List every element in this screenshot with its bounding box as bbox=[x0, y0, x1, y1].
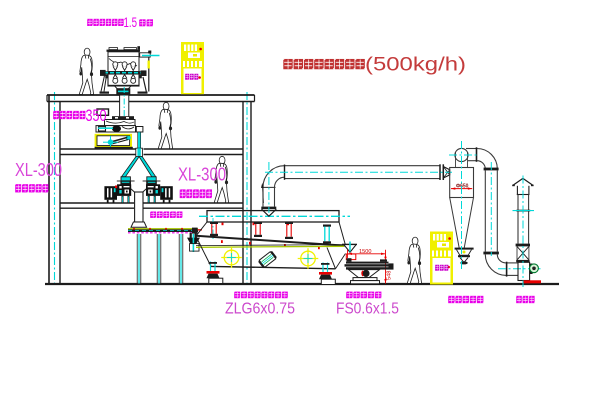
svg-text:XL-300: XL-300 bbox=[178, 164, 226, 185]
svg-text:Φ650: Φ650 bbox=[456, 183, 469, 189]
svg-text:548: 548 bbox=[387, 271, 393, 280]
svg-text:XL-300: XL-300 bbox=[15, 159, 62, 180]
svg-text:ZLG6x0.75: ZLG6x0.75 bbox=[225, 301, 295, 318]
svg-text:1500: 1500 bbox=[359, 249, 371, 255]
svg-text:1.5: 1.5 bbox=[124, 14, 138, 30]
svg-text:350: 350 bbox=[86, 106, 107, 125]
svg-text:(500kg/h): (500kg/h) bbox=[365, 54, 466, 76]
svg-text:FS0.6x1.5: FS0.6x1.5 bbox=[336, 301, 399, 318]
